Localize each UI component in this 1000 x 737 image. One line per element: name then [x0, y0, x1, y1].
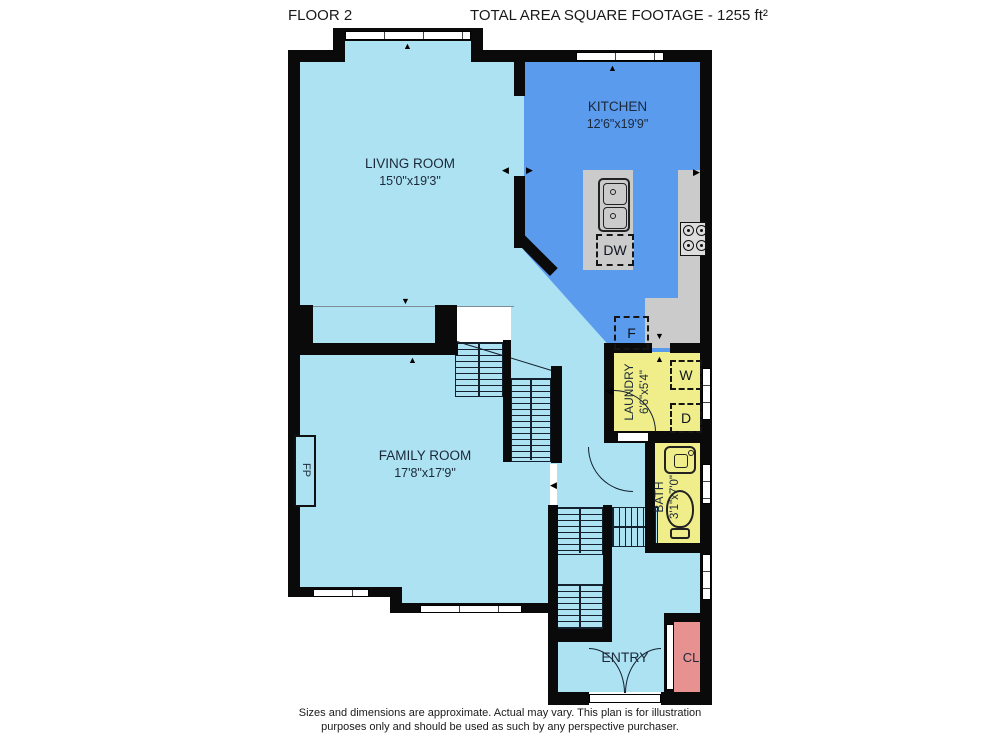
bath-window: [702, 464, 711, 504]
arrow-left-icon: ◀: [606, 387, 613, 396]
wall: [514, 62, 525, 96]
washer: W: [670, 360, 702, 390]
wall: [551, 366, 562, 463]
closet-label: CL: [676, 650, 706, 667]
arrow-up-icon: ▲: [608, 64, 617, 73]
bath-label: BATH 3'1"x7'0": [652, 452, 688, 542]
kitchen-corner-counter: [645, 298, 702, 348]
entry-label: ENTRY: [585, 648, 665, 666]
wall: [288, 305, 313, 345]
wall: [503, 340, 511, 462]
dishwasher-label: DW: [603, 242, 626, 258]
fridge-label: F: [627, 325, 636, 341]
kitchen-window: [576, 52, 664, 61]
stair-rail: [478, 344, 480, 396]
stair-rail: [579, 509, 581, 553]
laundry-window: [702, 368, 711, 420]
wall-niche-area: [313, 307, 435, 345]
bay-window: [345, 31, 471, 40]
closet-door: [666, 624, 674, 690]
living-room-label: LIVING ROOM 15'0"x19'3": [330, 155, 490, 189]
arrow-right-icon: ▶: [526, 166, 533, 175]
stair-rail: [579, 586, 581, 627]
arrow-left-icon: ◀: [502, 166, 509, 175]
wall: [603, 505, 612, 642]
hall-window: [702, 554, 711, 600]
disclaimer-line-2: purposes only and should be used as such…: [0, 720, 1000, 734]
kitchen-sink: [598, 178, 630, 232]
burner-icon: [683, 225, 694, 236]
family-room-area-lower: [400, 580, 550, 603]
floorplan-page: FLOOR 2 TOTAL AREA SQUARE FOOTAGE - 1255…: [0, 0, 1000, 737]
burner-icon: [683, 240, 694, 251]
dryer-label: D: [681, 410, 691, 426]
arrow-down-icon: ▼: [401, 297, 410, 306]
dishwasher: DW: [596, 234, 634, 266]
family-room-window-left: [313, 589, 369, 597]
arrow-left-icon: ◀: [550, 481, 557, 490]
fridge: F: [614, 316, 649, 350]
family-room-label: FAMILY ROOM 17'8"x17'9": [340, 447, 510, 481]
floor-plan: DW F W D FP ▲ ▲ ▼ ▲ ◀ ▶ ▼ ▲ ◀ ◀ ▶: [0, 0, 1000, 737]
family-room-window-right: [420, 605, 522, 613]
burner-icon: [696, 240, 707, 251]
dryer: D: [670, 403, 702, 433]
cooktop: [680, 222, 706, 256]
entry-door-threshold: [589, 694, 661, 703]
wall: [661, 692, 712, 705]
disclaimer: Sizes and dimensions are approximate. Ac…: [0, 706, 1000, 735]
arrow-up-icon: ▲: [408, 356, 417, 365]
arrow-up-icon: ▲: [403, 42, 412, 51]
arrow-down-icon: ▼: [655, 332, 664, 341]
stair-rail: [530, 380, 532, 460]
arrow-right-icon: ▶: [693, 168, 700, 177]
washer-label: W: [679, 367, 692, 383]
fireplace-label: FP: [297, 448, 313, 492]
laundry-label: LAUNDRY 6'6"x5'4": [622, 347, 658, 437]
kitchen-label: KITCHEN 12'6"x19'9": [545, 98, 690, 132]
disclaimer-line-1: Sizes and dimensions are approximate. Ac…: [0, 706, 1000, 720]
wall: [288, 343, 458, 355]
room-divider-line: [300, 306, 514, 307]
wall: [548, 692, 589, 705]
burner-icon: [696, 225, 707, 236]
